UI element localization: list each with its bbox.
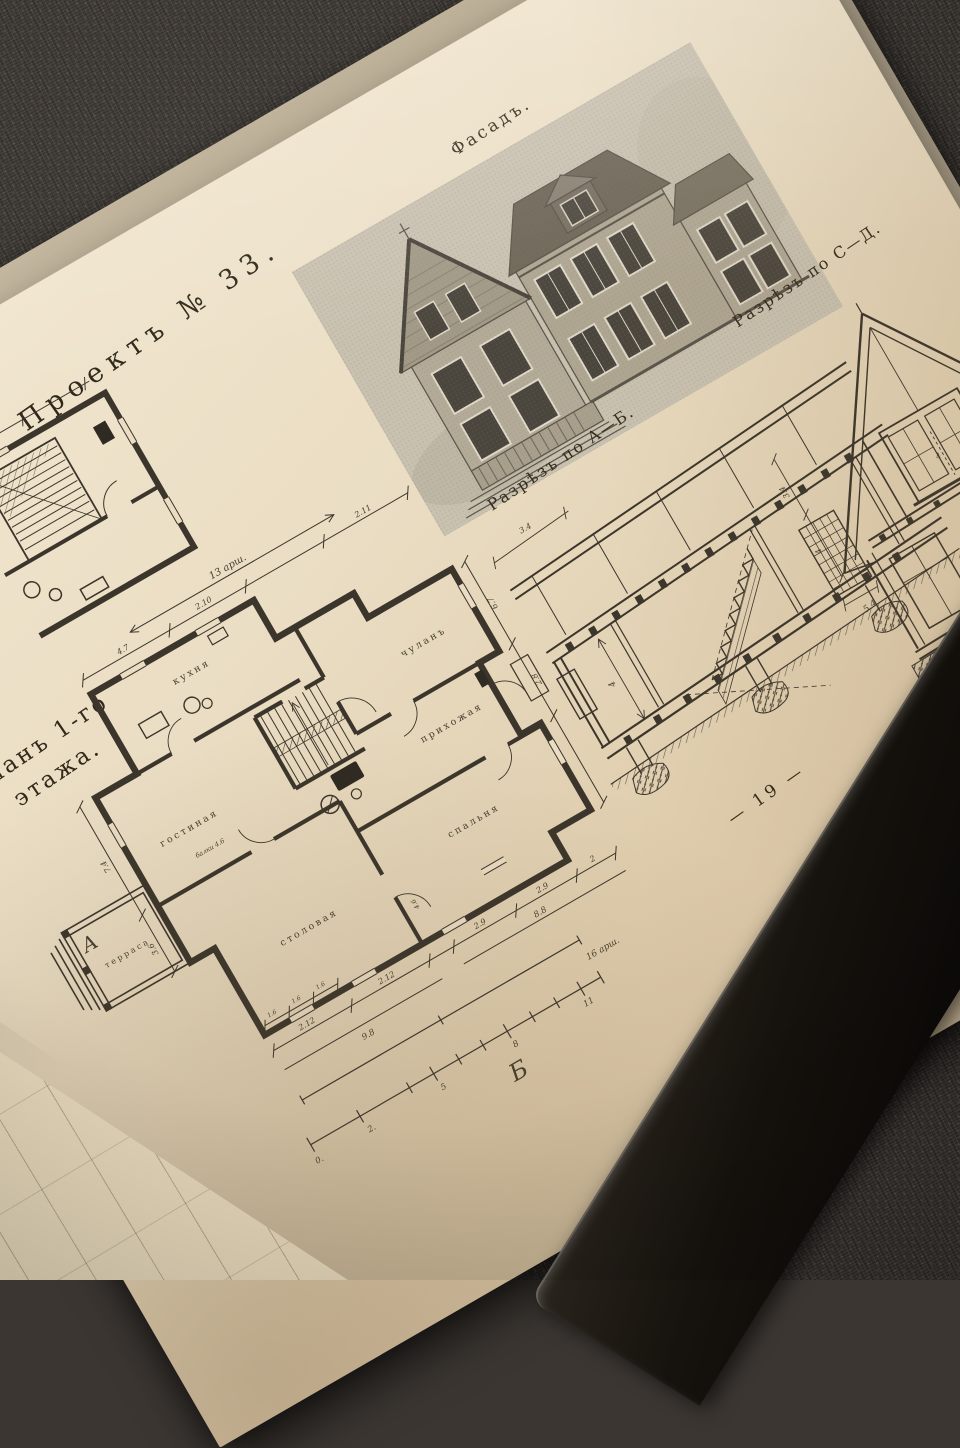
dim-bottom-1: 2.9 [471,917,487,932]
room-label-bedroom: спальня [446,802,502,841]
dim-ab-1: 4 [607,679,619,690]
dim-top-3: 2.11 [352,503,373,520]
dim-inner-1: 1.6 [266,1008,278,1019]
dim-cd-1: 3.4 [777,485,791,501]
dim-cd-3: 5.4 [862,598,880,615]
note-joists: балки 4.6 [194,837,226,860]
room-label-hall: прихожая [419,701,485,746]
dim-top-1: 4.7 [114,642,131,657]
room-label-dining: столовая [278,907,340,949]
dim-bottom-4: 8.8 [532,905,549,921]
dim-ab-2: 3.4 [517,521,533,535]
section-marker-a: А [75,929,102,958]
dim-inner-2: 1.6 [291,994,303,1005]
scale-tick-3: 8 [511,1039,521,1051]
dim-cd-2: 4 [813,547,824,557]
section-marker-b: Б [503,1054,533,1088]
room-label-terrace: терраса [103,937,152,970]
room-label-closet: чуланъ [399,625,449,660]
scale-tick-0: 0. [314,1154,326,1167]
dim-bottom-2: 2.9 [534,881,550,896]
dim-top-2: 2.10 [193,595,214,612]
room-label-kitchen: кухня [171,657,213,687]
dim-inner-3: 1.6 [315,980,327,991]
dim-overall-length: 16 арш. [585,936,622,963]
dim-bottom-3: 2 [587,854,597,865]
scale-tick-1: 2. [365,1123,378,1136]
scale-tick-2: 5 [439,1082,449,1093]
scale-tick-4: 11 [582,996,596,1010]
dim-stair-width: 4.6 [409,898,422,912]
dim-bottom-7: 9.8 [360,1027,377,1043]
